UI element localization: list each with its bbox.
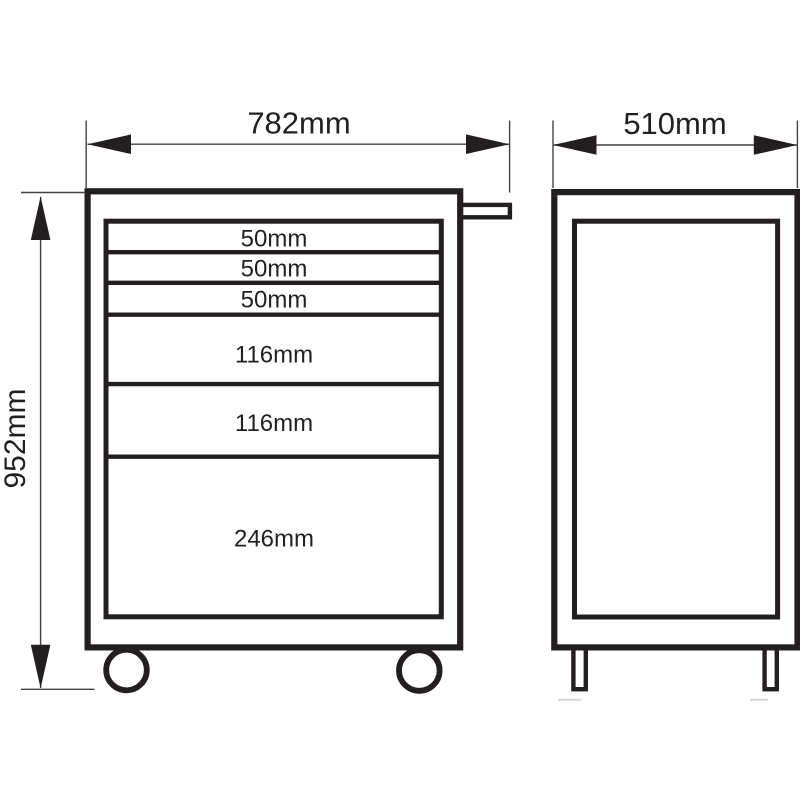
svg-text:50mm: 50mm — [241, 287, 308, 314]
svg-text:116mm: 116mm — [235, 341, 313, 368]
svg-text:50mm: 50mm — [241, 255, 308, 282]
svg-text:50mm: 50mm — [241, 226, 308, 253]
svg-text:116mm: 116mm — [235, 410, 313, 437]
svg-text:952mm: 952mm — [0, 388, 32, 488]
svg-text:246mm: 246mm — [234, 526, 314, 553]
svg-text:782mm: 782mm — [247, 106, 350, 141]
svg-text:510mm: 510mm — [623, 106, 726, 141]
